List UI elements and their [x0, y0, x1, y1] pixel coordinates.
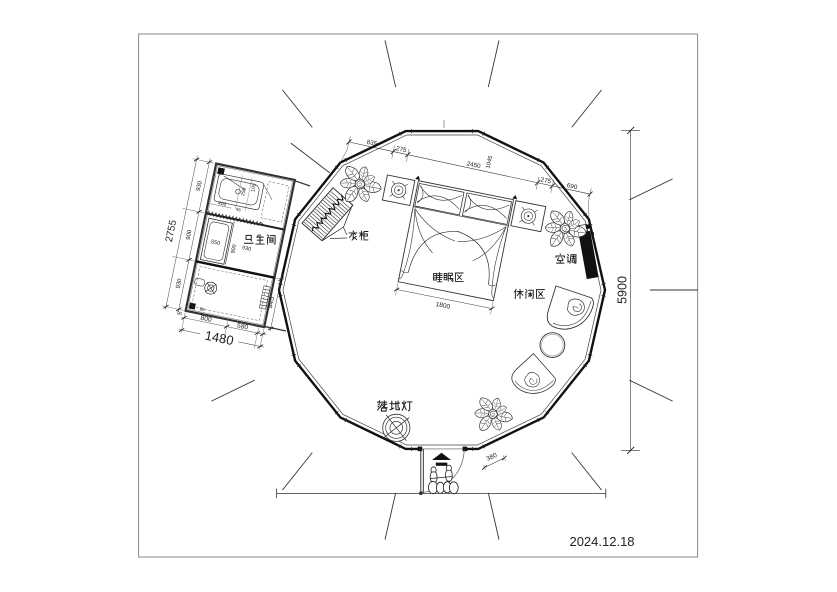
- svg-text:2024.12.18: 2024.12.18: [569, 534, 634, 549]
- svg-text:5900: 5900: [616, 276, 630, 304]
